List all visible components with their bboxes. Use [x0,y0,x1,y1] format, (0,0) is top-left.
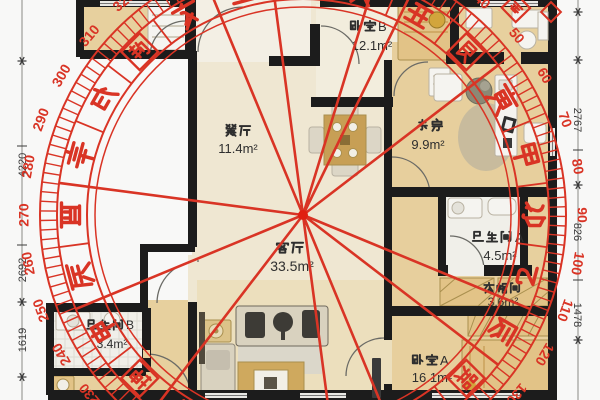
svg-text:A: A [440,353,449,368]
svg-text:4.5m²: 4.5m² [483,248,517,263]
svg-text:9.9m²: 9.9m² [411,137,445,152]
svg-text:80: 80 [569,157,587,175]
svg-text:826: 826 [571,223,583,241]
svg-text:1619: 1619 [17,328,29,352]
svg-text:33.5m²: 33.5m² [270,258,314,274]
svg-text:90: 90 [574,207,590,223]
svg-text:270: 270 [16,203,32,227]
svg-text:11.4m²: 11.4m² [218,141,258,156]
